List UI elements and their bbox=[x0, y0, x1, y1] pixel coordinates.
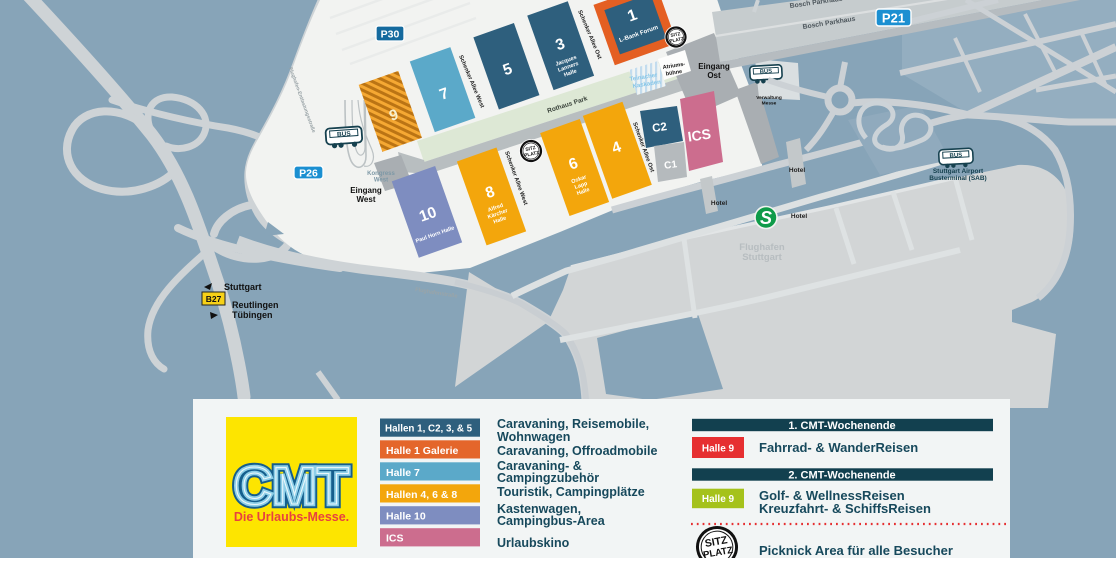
svg-text:Eingang: Eingang bbox=[698, 62, 730, 71]
svg-text:West: West bbox=[357, 195, 376, 204]
svg-text:Die Urlaubs-Messe.: Die Urlaubs-Messe. bbox=[234, 510, 349, 524]
svg-text:Ost: Ost bbox=[707, 71, 721, 80]
svg-text:CMT: CMT bbox=[234, 457, 349, 516]
svg-text:Urlaubskino: Urlaubskino bbox=[497, 536, 570, 550]
svg-text:Halle 1 Galerie: Halle 1 Galerie bbox=[386, 445, 459, 457]
svg-text:ICS: ICS bbox=[687, 126, 712, 145]
svg-text:P21: P21 bbox=[882, 11, 905, 26]
svg-text:P30: P30 bbox=[381, 29, 400, 41]
svg-text:Halle 9: Halle 9 bbox=[702, 444, 735, 455]
svg-text:C2: C2 bbox=[651, 121, 667, 135]
svg-text:Halle 7: Halle 7 bbox=[386, 467, 420, 479]
svg-text:Stuttgart Airport: Stuttgart Airport bbox=[933, 168, 984, 175]
svg-text:Caravaning, Offroadmobile: Caravaning, Offroadmobile bbox=[497, 444, 657, 458]
svg-text:Busterminal (SAB): Busterminal (SAB) bbox=[929, 175, 986, 182]
svg-text:Halle 10: Halle 10 bbox=[386, 511, 426, 523]
svg-text:Hallen 4, 6 & 8: Hallen 4, 6 & 8 bbox=[386, 489, 457, 501]
svg-text:Touristik, Campingplätze: Touristik, Campingplätze bbox=[497, 485, 645, 499]
svg-text:Campingzubehör: Campingzubehör bbox=[497, 471, 599, 485]
svg-text:2. CMT-Wochenende: 2. CMT-Wochenende bbox=[788, 469, 895, 481]
svg-text:C1: C1 bbox=[664, 159, 679, 172]
svg-text:Fahrrad- & WanderReisen: Fahrrad- & WanderReisen bbox=[759, 440, 918, 455]
svg-text:Caravaning, Reisemobile,: Caravaning, Reisemobile, bbox=[497, 417, 649, 431]
svg-text:P26: P26 bbox=[299, 168, 318, 180]
svg-text:BUS: BUS bbox=[760, 69, 773, 76]
svg-text:Wohnwagen: Wohnwagen bbox=[497, 430, 570, 444]
svg-text:Tübingen: Tübingen bbox=[232, 310, 273, 320]
svg-text:Hotel: Hotel bbox=[789, 167, 805, 174]
svg-text:West: West bbox=[374, 178, 388, 184]
svg-text:Halle 9: Halle 9 bbox=[702, 494, 735, 505]
svg-text:BUS: BUS bbox=[949, 153, 962, 160]
svg-text:Hallen 1, C2, 3, & 5: Hallen 1, C2, 3, & 5 bbox=[385, 424, 473, 435]
svg-text:B27: B27 bbox=[206, 294, 222, 304]
svg-text:Campingbus-Area: Campingbus-Area bbox=[497, 514, 606, 528]
svg-text:Eingang: Eingang bbox=[350, 186, 382, 195]
svg-text:Hotel: Hotel bbox=[791, 213, 807, 220]
svg-text:Stuttgart: Stuttgart bbox=[742, 252, 782, 263]
svg-text:Kongress: Kongress bbox=[367, 171, 395, 177]
svg-text:ICS: ICS bbox=[386, 533, 404, 545]
svg-text:Messe: Messe bbox=[762, 101, 777, 107]
svg-text:Reutlingen: Reutlingen bbox=[232, 300, 279, 310]
svg-text:Hotel: Hotel bbox=[711, 200, 727, 207]
svg-text:S: S bbox=[760, 208, 772, 228]
svg-text:Stuttgart: Stuttgart bbox=[224, 282, 262, 292]
svg-text:1. CMT-Wochenende: 1. CMT-Wochenende bbox=[788, 420, 895, 432]
svg-text:BUS: BUS bbox=[337, 130, 352, 138]
svg-text:Kreuzfahrt- & SchiffsReisen: Kreuzfahrt- & SchiffsReisen bbox=[759, 501, 931, 516]
svg-text:Verwaltung: Verwaltung bbox=[756, 95, 782, 101]
svg-text:Picknick Area für alle Besuche: Picknick Area für alle Besucher bbox=[759, 543, 953, 558]
